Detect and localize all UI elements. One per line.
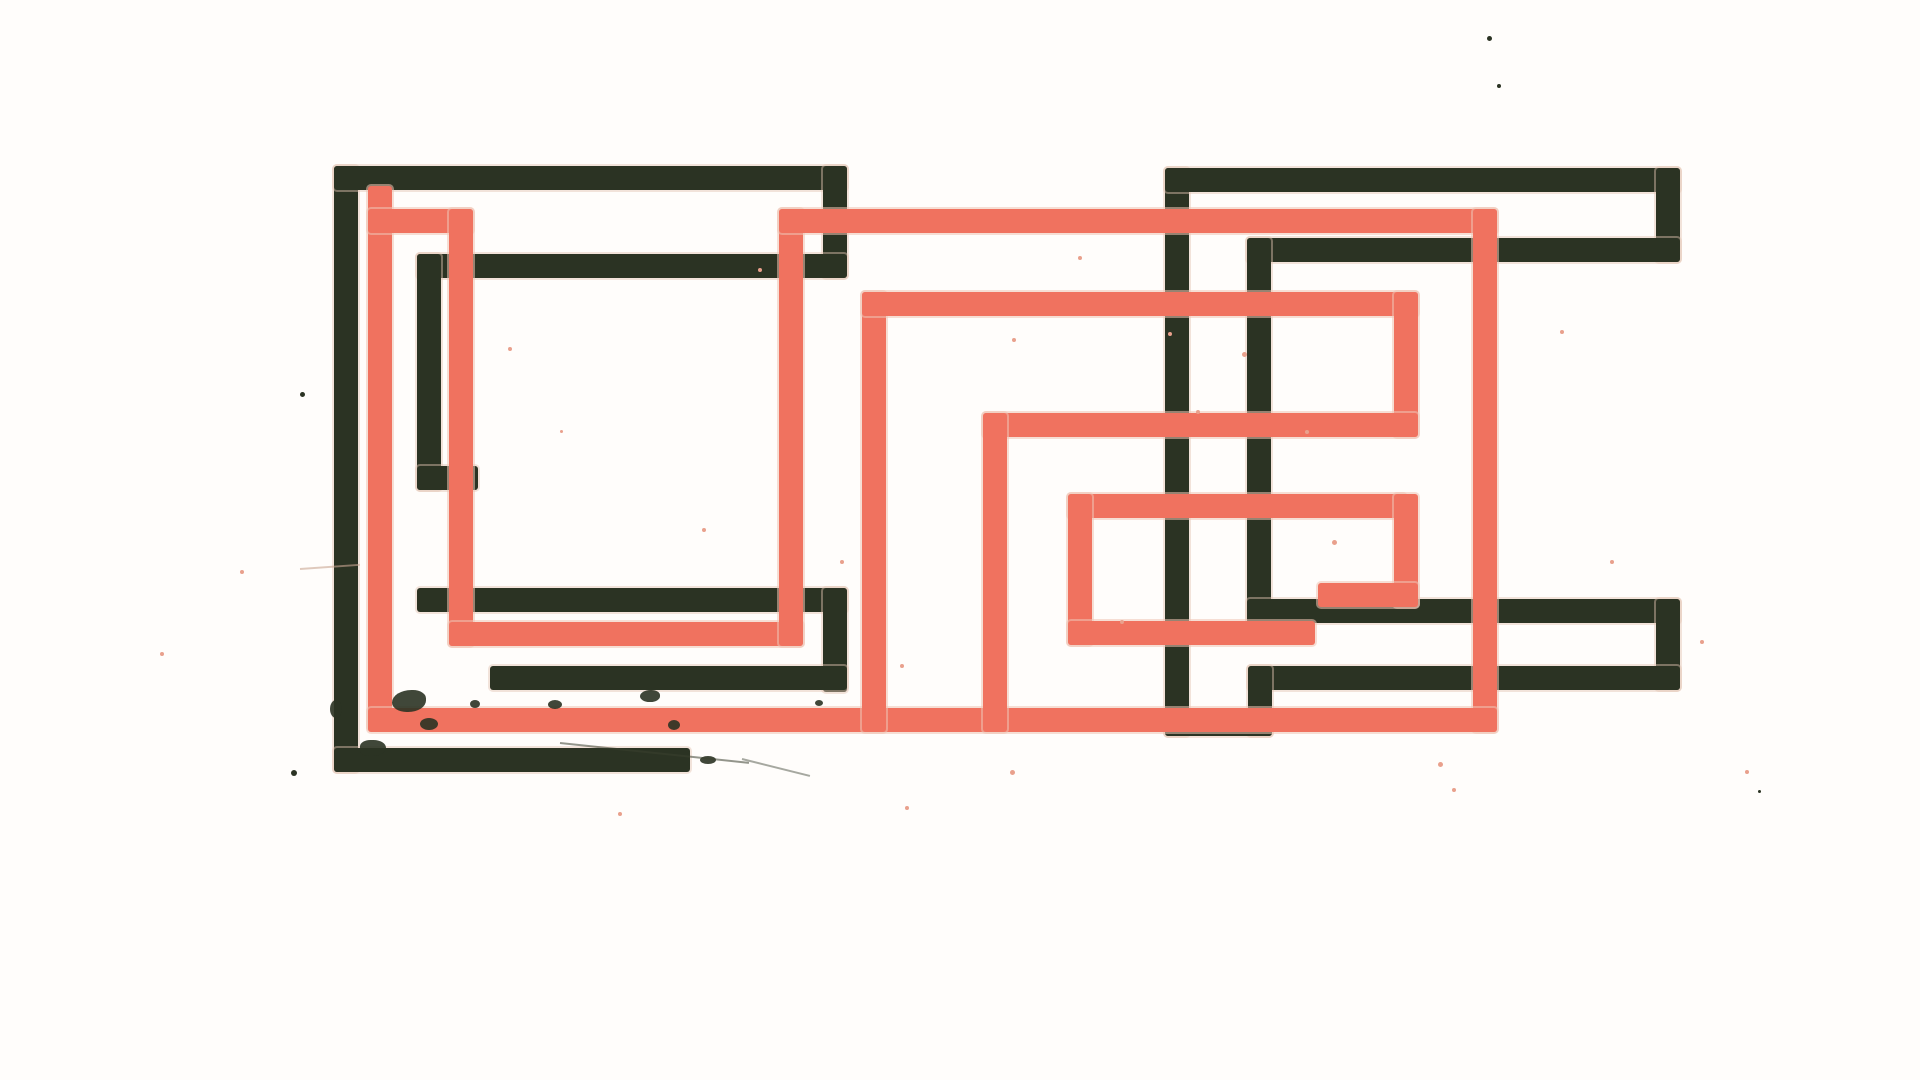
print-speckle bbox=[1242, 352, 1247, 357]
print-speckle bbox=[291, 770, 297, 776]
print-speckle bbox=[1078, 256, 1082, 260]
print-speckle bbox=[1560, 330, 1564, 334]
salmon-meander-segment bbox=[862, 292, 886, 732]
print-speckle bbox=[508, 347, 512, 351]
salmon-meander-segment bbox=[779, 209, 1497, 233]
print-speckle bbox=[1120, 620, 1124, 624]
print-speckle bbox=[702, 528, 706, 532]
left-dark-segment bbox=[490, 666, 847, 690]
right-dark-segment bbox=[1165, 168, 1680, 192]
salmon-meander-segment bbox=[1318, 583, 1418, 607]
print-speckle bbox=[1012, 338, 1016, 342]
right-dark-segment bbox=[1247, 599, 1680, 623]
scratch-mark bbox=[742, 758, 810, 777]
print-speckle bbox=[1487, 36, 1492, 41]
print-speckle bbox=[560, 430, 563, 433]
salmon-meander-segment bbox=[862, 292, 1418, 316]
print-speckle bbox=[1332, 540, 1337, 545]
salmon-meander-segment bbox=[983, 413, 1007, 732]
ink-splatter bbox=[548, 700, 562, 709]
salmon-meander-segment bbox=[983, 413, 1418, 437]
print-speckle bbox=[1497, 84, 1501, 88]
print-speckle bbox=[1700, 640, 1704, 644]
print-speckle bbox=[1010, 770, 1015, 775]
salmon-meander-segment bbox=[449, 622, 803, 646]
print-speckle bbox=[1745, 770, 1749, 774]
ink-splatter bbox=[815, 700, 823, 706]
salmon-meander-segment bbox=[779, 209, 803, 646]
ink-splatter bbox=[668, 720, 680, 730]
print-speckle bbox=[300, 392, 305, 397]
print-speckle bbox=[840, 560, 844, 564]
salmon-meander-segment bbox=[1473, 209, 1497, 732]
print-speckle bbox=[1168, 332, 1172, 336]
print-speckle bbox=[240, 570, 244, 574]
print-speckle bbox=[618, 812, 622, 816]
artwork-canvas bbox=[0, 0, 1920, 1080]
salmon-meander-segment bbox=[1068, 621, 1315, 645]
ink-splatter bbox=[470, 700, 480, 708]
ink-splatter bbox=[420, 718, 438, 730]
print-speckle bbox=[1305, 430, 1309, 434]
salmon-meander-segment bbox=[368, 708, 1497, 732]
print-speckle bbox=[160, 652, 164, 656]
right-dark-segment bbox=[1248, 666, 1680, 690]
left-dark-segment bbox=[334, 166, 847, 190]
left-dark-segment bbox=[417, 254, 441, 490]
print-speckle bbox=[900, 664, 904, 668]
print-speckle bbox=[758, 268, 762, 272]
ink-splatter bbox=[640, 690, 660, 702]
print-speckle bbox=[1438, 762, 1443, 767]
salmon-meander-segment bbox=[449, 209, 473, 646]
print-speckle bbox=[905, 806, 909, 810]
right-dark-segment bbox=[1165, 168, 1189, 736]
left-dark-segment bbox=[334, 166, 358, 772]
salmon-meander-segment bbox=[1068, 494, 1406, 518]
print-speckle bbox=[1610, 560, 1614, 564]
print-speckle bbox=[1196, 410, 1200, 414]
print-speckle bbox=[1758, 790, 1761, 793]
print-speckle bbox=[1452, 788, 1456, 792]
ink-splatter bbox=[330, 700, 342, 718]
right-dark-segment bbox=[1247, 238, 1680, 262]
salmon-meander-segment bbox=[368, 186, 392, 730]
